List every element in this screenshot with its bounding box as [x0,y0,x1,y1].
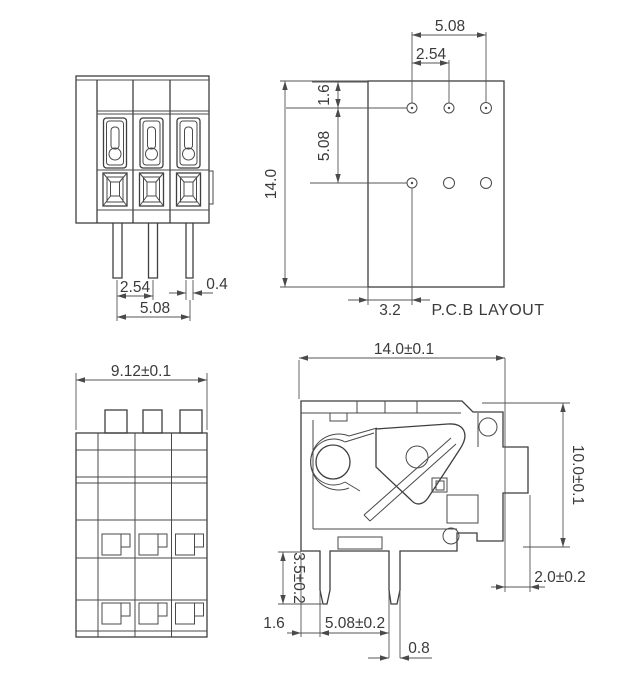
dim-label-row-pitch: 5.08 [316,131,333,161]
dim-label-top-offset: 1.6 [316,84,333,106]
dim-label-pin-pitch: 2.54 [120,279,151,296]
dim-label-side-height: 10.0±0.1 [569,445,586,505]
lever-tab [105,410,127,433]
side-view: 14.0±0.1 10.0±0.1 2.0±0.2 3.5±0.2 [263,341,586,661]
dim-label-left-offset: 3.2 [379,302,401,319]
pin [149,223,158,278]
dim-label-hole-pitch: 2.54 [416,46,447,63]
lever-tab [143,410,162,433]
pcb-dimensions: 5.08 2.54 1.6 5.08 14.0 [263,18,486,319]
wire-opening [103,173,127,206]
wire-clamp [311,428,377,491]
dim-label-side-pin-width: 0.8 [408,640,430,657]
release-lever [364,424,465,521]
front-dimensions: 2.54 5.08 0.4 [117,276,228,321]
pole-2 [140,118,164,206]
dim-label-pcb-height: 14.0 [263,169,280,200]
bottom-slot [338,537,382,549]
dim-label-side-pin-pitch: 5.08±0.2 [325,615,385,632]
pcb-layout-view: 5.08 2.54 1.6 5.08 14.0 [263,18,545,319]
housing-hole-top [479,418,497,436]
lever-tab [180,410,202,433]
top-view-dimension: 9.12±0.1 [76,363,207,430]
dim-label-pin-offset: 1.6 [263,615,285,632]
lever [104,118,127,168]
dim-label-hole-span: 5.08 [435,18,465,35]
dim-label-pin-span: 5.08 [140,300,170,317]
pin [186,223,193,278]
dim-label-side-width: 14.0±0.1 [374,341,434,358]
dim-label-pin-length: 3.5±0.2 [290,552,307,604]
technical-drawing-terminal-block: 2.54 5.08 0.4 [0,0,640,682]
top-view: 9.12±0.1 [76,363,207,637]
drawing-svg: 2.54 5.08 0.4 [0,0,640,682]
contact-hooks [102,534,204,624]
pole-1 [103,118,127,206]
dim-label-body-width: 9.12±0.1 [111,363,171,380]
dim-label-pin-width: 0.4 [206,276,228,293]
front-view: 2.54 5.08 0.4 [76,76,228,321]
pcb-layout-caption: P.C.B LAYOUT [432,302,545,319]
dim-label-tab-depth: 2.0±0.2 [534,569,586,586]
pin [113,223,122,278]
pcb-holes [407,103,492,189]
pole-3 [177,118,201,206]
